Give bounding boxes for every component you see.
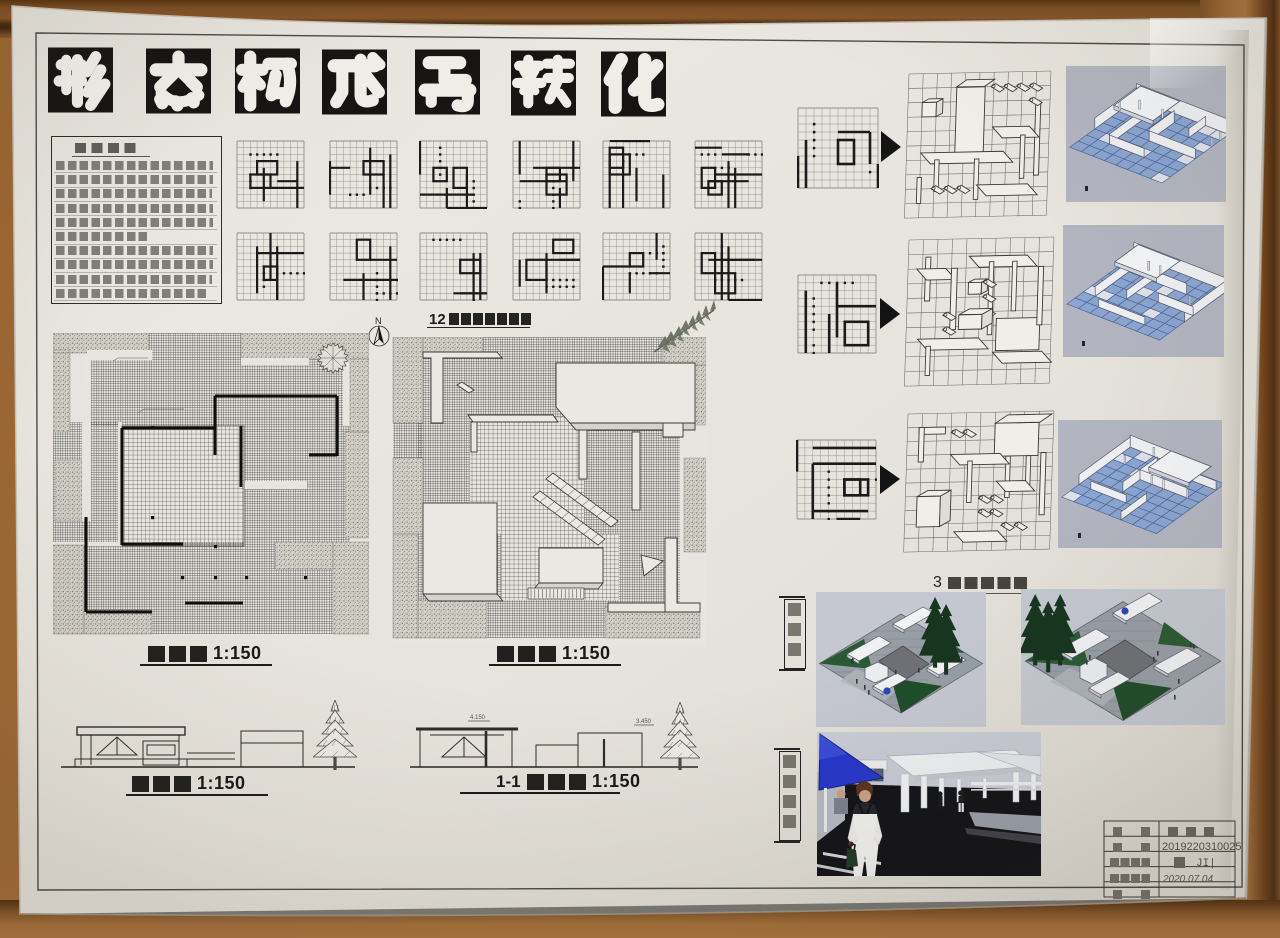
svg-text:N: N bbox=[375, 316, 382, 326]
svg-text:4.150: 4.150 bbox=[470, 715, 486, 721]
svg-text:3.450: 3.450 bbox=[636, 719, 652, 725]
